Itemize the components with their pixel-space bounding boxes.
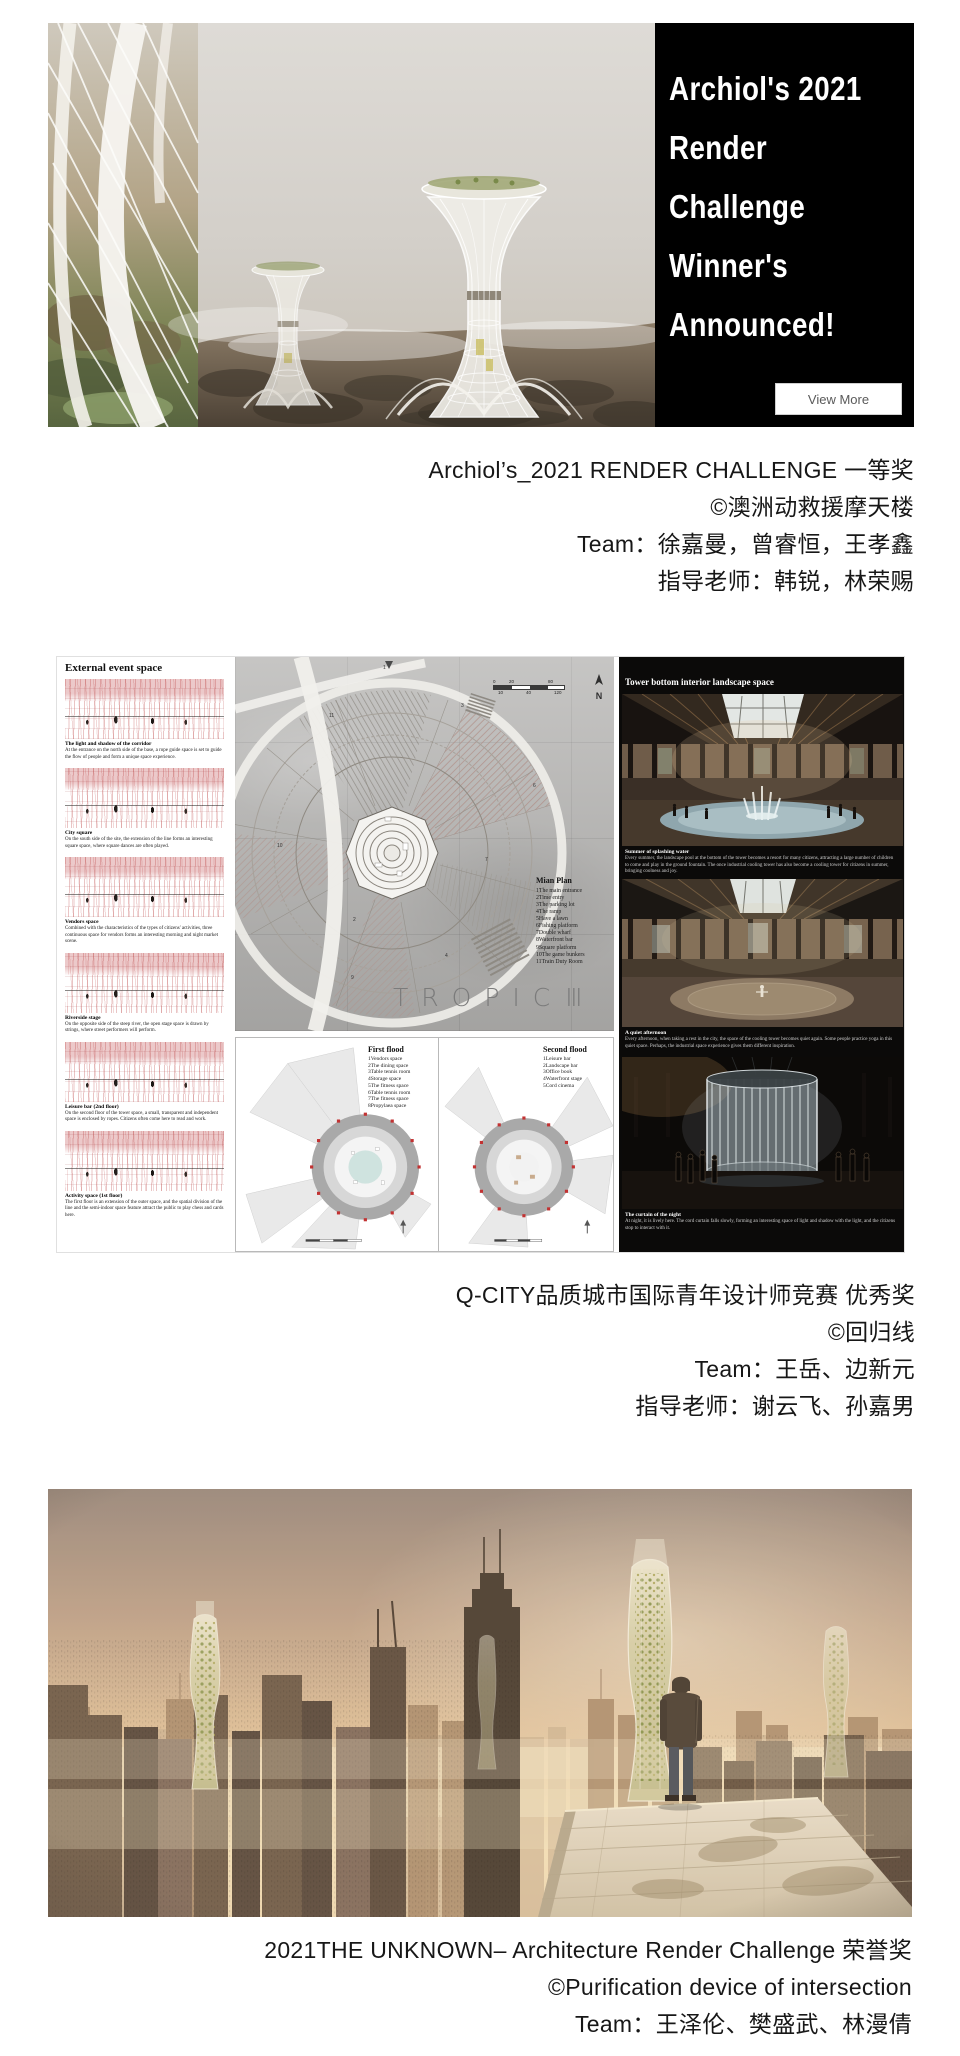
- hero-banner[interactable]: Archiol's 2021RenderChallengeWinner'sAnn…: [48, 23, 914, 427]
- scale-number: 40: [526, 690, 531, 695]
- plan-legend: Mian Plan 1The main entrance2Time entry3…: [536, 876, 610, 966]
- caption-award-1: Archiol’s_2021 RENDER CHALLENGE 一等奖 ©澳洲动…: [428, 452, 914, 600]
- sketch-caption: The first floor is an extension of the o…: [65, 1200, 224, 1220]
- banner-heading-line: Winner's: [669, 236, 862, 295]
- award3-team: Team：王泽伦、樊盛武、林漫倩: [264, 2006, 912, 2043]
- award3-credit: ©Purification device of intersection: [264, 1969, 912, 2006]
- banner-heading-line: Render: [669, 118, 862, 177]
- second-floor-plan: Second flood 1Leisure bar2Landscape bar3…: [439, 1038, 613, 1251]
- first-floor-title: First flood: [368, 1045, 432, 1054]
- sketch-caption: At the entrance on the north side of the…: [65, 748, 224, 761]
- site-plan: 02080 1040120 N Mian Plan 1The main entr…: [235, 657, 614, 1031]
- render-afternoon-title: A quiet afternoon: [625, 1030, 898, 1036]
- plan-legend-item: 10The game bunkers: [536, 952, 610, 959]
- plan-legend-item: 8Waterfront bar: [536, 937, 610, 944]
- banner-heading-line: Announced!: [669, 295, 862, 354]
- poster-left-items: The light and shadow of the corridor At …: [65, 679, 224, 1219]
- award2-advisor: 指导老师：谢云飞、孙嘉男: [456, 1388, 915, 1425]
- sketch-item: Vendors space Combined with the characte…: [65, 857, 224, 946]
- plan-legend-item: 3The parking lot: [536, 902, 610, 909]
- plan-number: 6: [533, 783, 536, 789]
- floor-legend-item: 4Storage space: [368, 1076, 432, 1083]
- poster-plan-panel: 02080 1040120 N Mian Plan 1The main entr…: [235, 657, 614, 1252]
- floor-legend-item: 1Leisure bar: [543, 1056, 607, 1063]
- floor-plans: First flood 1Vendors space2The dining sp…: [235, 1037, 614, 1252]
- plan-number: 7: [485, 857, 488, 863]
- sketch-title: Riverside stage: [65, 1015, 224, 1021]
- sketch-thumbnail: [65, 1131, 224, 1191]
- scale-number: 120: [554, 690, 562, 695]
- tower-landscape-illustration: [48, 23, 655, 427]
- north-arrow-icon: N: [594, 673, 604, 701]
- render-summer-title: Summer of splashing water: [625, 849, 898, 855]
- plan-number: 10: [277, 843, 283, 849]
- award2-credit: ©回归线: [456, 1314, 915, 1351]
- plan-number: 3: [461, 703, 464, 709]
- render-summer-fountain: [622, 694, 903, 846]
- floor-legend-item: 4Waterfront stage: [543, 1076, 607, 1083]
- second-floor-title: Second flood: [543, 1045, 607, 1054]
- sketch-title: Vendors space: [65, 919, 224, 925]
- tropic-logo: TROPICⅢ: [393, 983, 582, 1012]
- sketch-thumbnail: [65, 857, 224, 917]
- poster-left-panel: External event space The light and shado…: [57, 657, 232, 1252]
- first-floor-plan: First flood 1Vendors space2The dining sp…: [236, 1038, 439, 1251]
- cityscape-render[interactable]: [48, 1489, 912, 1917]
- page: Archiol's 2021RenderChallengeWinner'sAnn…: [0, 0, 960, 2056]
- sketch-caption: Combined with the characteristics of the…: [65, 926, 224, 946]
- render-night-text: At night, it is lively here. The cord cu…: [625, 1219, 898, 1232]
- sketch-thumbnail: [65, 1042, 224, 1102]
- caption-award-3: 2021THE UNKNOWN– Architecture Render Cha…: [264, 1932, 912, 2043]
- caption-award-2: Q-CITY品质城市国际青年设计师竞赛 优秀奖 ©回归线 Team：王岳、边新元…: [456, 1277, 915, 1425]
- banner-photo-render: [48, 23, 655, 427]
- sketch-title: Leisure bar (2nd floor): [65, 1104, 224, 1110]
- plan-number: 1: [383, 665, 386, 671]
- sketch-item: City square On the south side of the sit…: [65, 768, 224, 850]
- render-afternoon-text: Every afternoon, when taking a rest in t…: [625, 1037, 898, 1050]
- plan-number: 9: [351, 975, 354, 981]
- floor-legend-item: 5Cord cinema: [543, 1083, 607, 1090]
- award1-title: Archiol’s_2021 RENDER CHALLENGE 一等奖: [428, 452, 914, 489]
- sketch-thumbnail: [65, 679, 224, 739]
- second-floor-legend: Second flood 1Leisure bar2Landscape bar3…: [543, 1045, 607, 1090]
- sketch-title: The light and shadow of the corridor: [65, 741, 224, 747]
- cityscape-illustration: [48, 1489, 912, 1917]
- sketch-caption: On the second floor of the tower space, …: [65, 1111, 224, 1124]
- award2-title: Q-CITY品质城市国际青年设计师竞赛 优秀奖: [456, 1277, 915, 1314]
- floor-legend-item: 1Vendors space: [368, 1056, 432, 1063]
- site-plan-drawing: [235, 657, 614, 1031]
- first-floor-legend: First flood 1Vendors space2The dining sp…: [368, 1045, 432, 1110]
- plan-legend-item: 4The ramp: [536, 909, 610, 916]
- floor-legend-item: 7The fitness space: [368, 1096, 432, 1103]
- plan-legend-item: 2Time entry: [536, 895, 610, 902]
- plan-legend-item: 1The main entrance: [536, 888, 610, 895]
- scale-number: 10: [498, 690, 503, 695]
- poster-right-panel: Tower bottom interior landscape space: [619, 657, 904, 1252]
- sketch-item: The light and shadow of the corridor At …: [65, 679, 224, 761]
- sketch-item: Activity space (1st floor) The first flo…: [65, 1131, 224, 1220]
- scale-number: 0: [493, 679, 496, 684]
- floor-legend-item: 2The dining space: [368, 1063, 432, 1070]
- banner-heading-line: Challenge: [669, 177, 862, 236]
- scale-number: 20: [509, 679, 514, 684]
- floor-legend-item: 5The fitness space: [368, 1083, 432, 1090]
- plan-legend-title: Mian Plan: [536, 876, 610, 885]
- sketch-caption: On the opposite side of the steep river,…: [65, 1022, 224, 1035]
- plan-legend-item: 11Train Duty Room: [536, 959, 610, 966]
- sketch-item: Leisure bar (2nd floor) On the second fl…: [65, 1042, 224, 1124]
- sketch-thumbnail: [65, 953, 224, 1013]
- sketch-item: Riverside stage On the opposite side of …: [65, 953, 224, 1035]
- plan-number: 11: [329, 713, 334, 719]
- sketch-title: Activity space (1st floor): [65, 1193, 224, 1199]
- award2-team: Team：王岳、边新元: [456, 1351, 915, 1388]
- sketch-title: City square: [65, 830, 224, 836]
- floor-legend-item: 3Table tennis room: [368, 1069, 432, 1076]
- poster-right-header: Tower bottom interior landscape space: [625, 677, 774, 687]
- render-summer-text: Every summer, the landscape pool at the …: [625, 856, 898, 876]
- award1-credit: ©澳洲动救援摩天楼: [428, 489, 914, 526]
- banner-heading: Archiol's 2021RenderChallengeWinner'sAnn…: [669, 59, 898, 354]
- banner-heading-line: Archiol's 2021: [669, 59, 862, 118]
- render-afternoon-yoga: [622, 879, 903, 1027]
- render-night-title: The curtain of the night: [625, 1212, 898, 1218]
- floor-legend-item: 8Propylaea space: [368, 1103, 432, 1110]
- render-night-curtain: [622, 1057, 903, 1209]
- poster-left-header: External event space: [65, 662, 224, 674]
- banner-text-panel: Archiol's 2021RenderChallengeWinner'sAnn…: [655, 23, 914, 427]
- plan-number: 4: [445, 953, 448, 959]
- sketch-caption: On the south side of the site, the exten…: [65, 837, 224, 850]
- plan-legend-item: 9Square platform: [536, 945, 610, 952]
- poster-q-city[interactable]: External event space The light and shado…: [56, 656, 905, 1253]
- sketch-thumbnail: [65, 768, 224, 828]
- plan-number: 2: [353, 917, 356, 923]
- award1-advisor: 指导老师：韩锐，林荣赐: [428, 563, 914, 600]
- scale-number: 80: [548, 679, 553, 684]
- award3-title: 2021THE UNKNOWN– Architecture Render Cha…: [264, 1932, 912, 1969]
- scale-bar: 02080 1040120: [493, 679, 565, 696]
- award1-team: Team：徐嘉曼，曾睿恒，王孝鑫: [428, 526, 914, 563]
- view-more-button[interactable]: View More: [775, 383, 902, 415]
